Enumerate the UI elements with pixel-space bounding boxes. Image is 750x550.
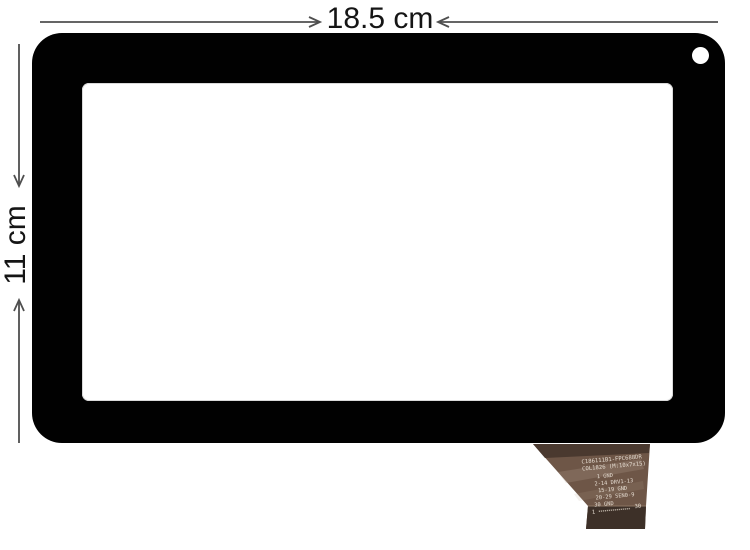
width-dimension-label: 18.5 cm	[320, 3, 440, 35]
device-screen	[82, 83, 673, 401]
cable-glare	[558, 459, 644, 483]
cable-connector-band	[586, 506, 646, 529]
cable-label-line: 2-14 DRV1-13	[594, 478, 633, 487]
camera-hole	[692, 47, 709, 64]
cable-label-line: 15-19 GND	[598, 486, 628, 495]
cable-pin-last: 30	[634, 504, 641, 511]
arrow-right-icon	[309, 17, 320, 27]
cable-label-line: COL1826 (M:10x7x15)	[582, 461, 646, 473]
cable-serial-marks	[599, 508, 631, 511]
product-photo: C186111B1-FPC688DR COL1826 (M:10x7x15) 1…	[0, 0, 750, 550]
cable-top-strip	[533, 444, 650, 458]
cable-label-line: 20-29 SEN0-9	[595, 492, 634, 501]
device-bezel	[32, 33, 725, 443]
height-dimension-label: 11 cm	[0, 185, 32, 305]
cable-label-line: 30 GND	[594, 501, 614, 509]
cable-body	[533, 444, 650, 529]
cable-print: C186111B1-FPC688DR COL1826 (M:10x7x15) 1…	[581, 454, 650, 516]
cable-glare	[574, 481, 644, 501]
cable-pin-first: 1	[592, 510, 596, 516]
cable-label-line: C186111B1-FPC688DR	[581, 454, 643, 465]
cable-label-line: 1 GND	[597, 473, 614, 480]
flex-cable: C186111B1-FPC688DR COL1826 (M:10x7x15) 1…	[533, 444, 650, 529]
